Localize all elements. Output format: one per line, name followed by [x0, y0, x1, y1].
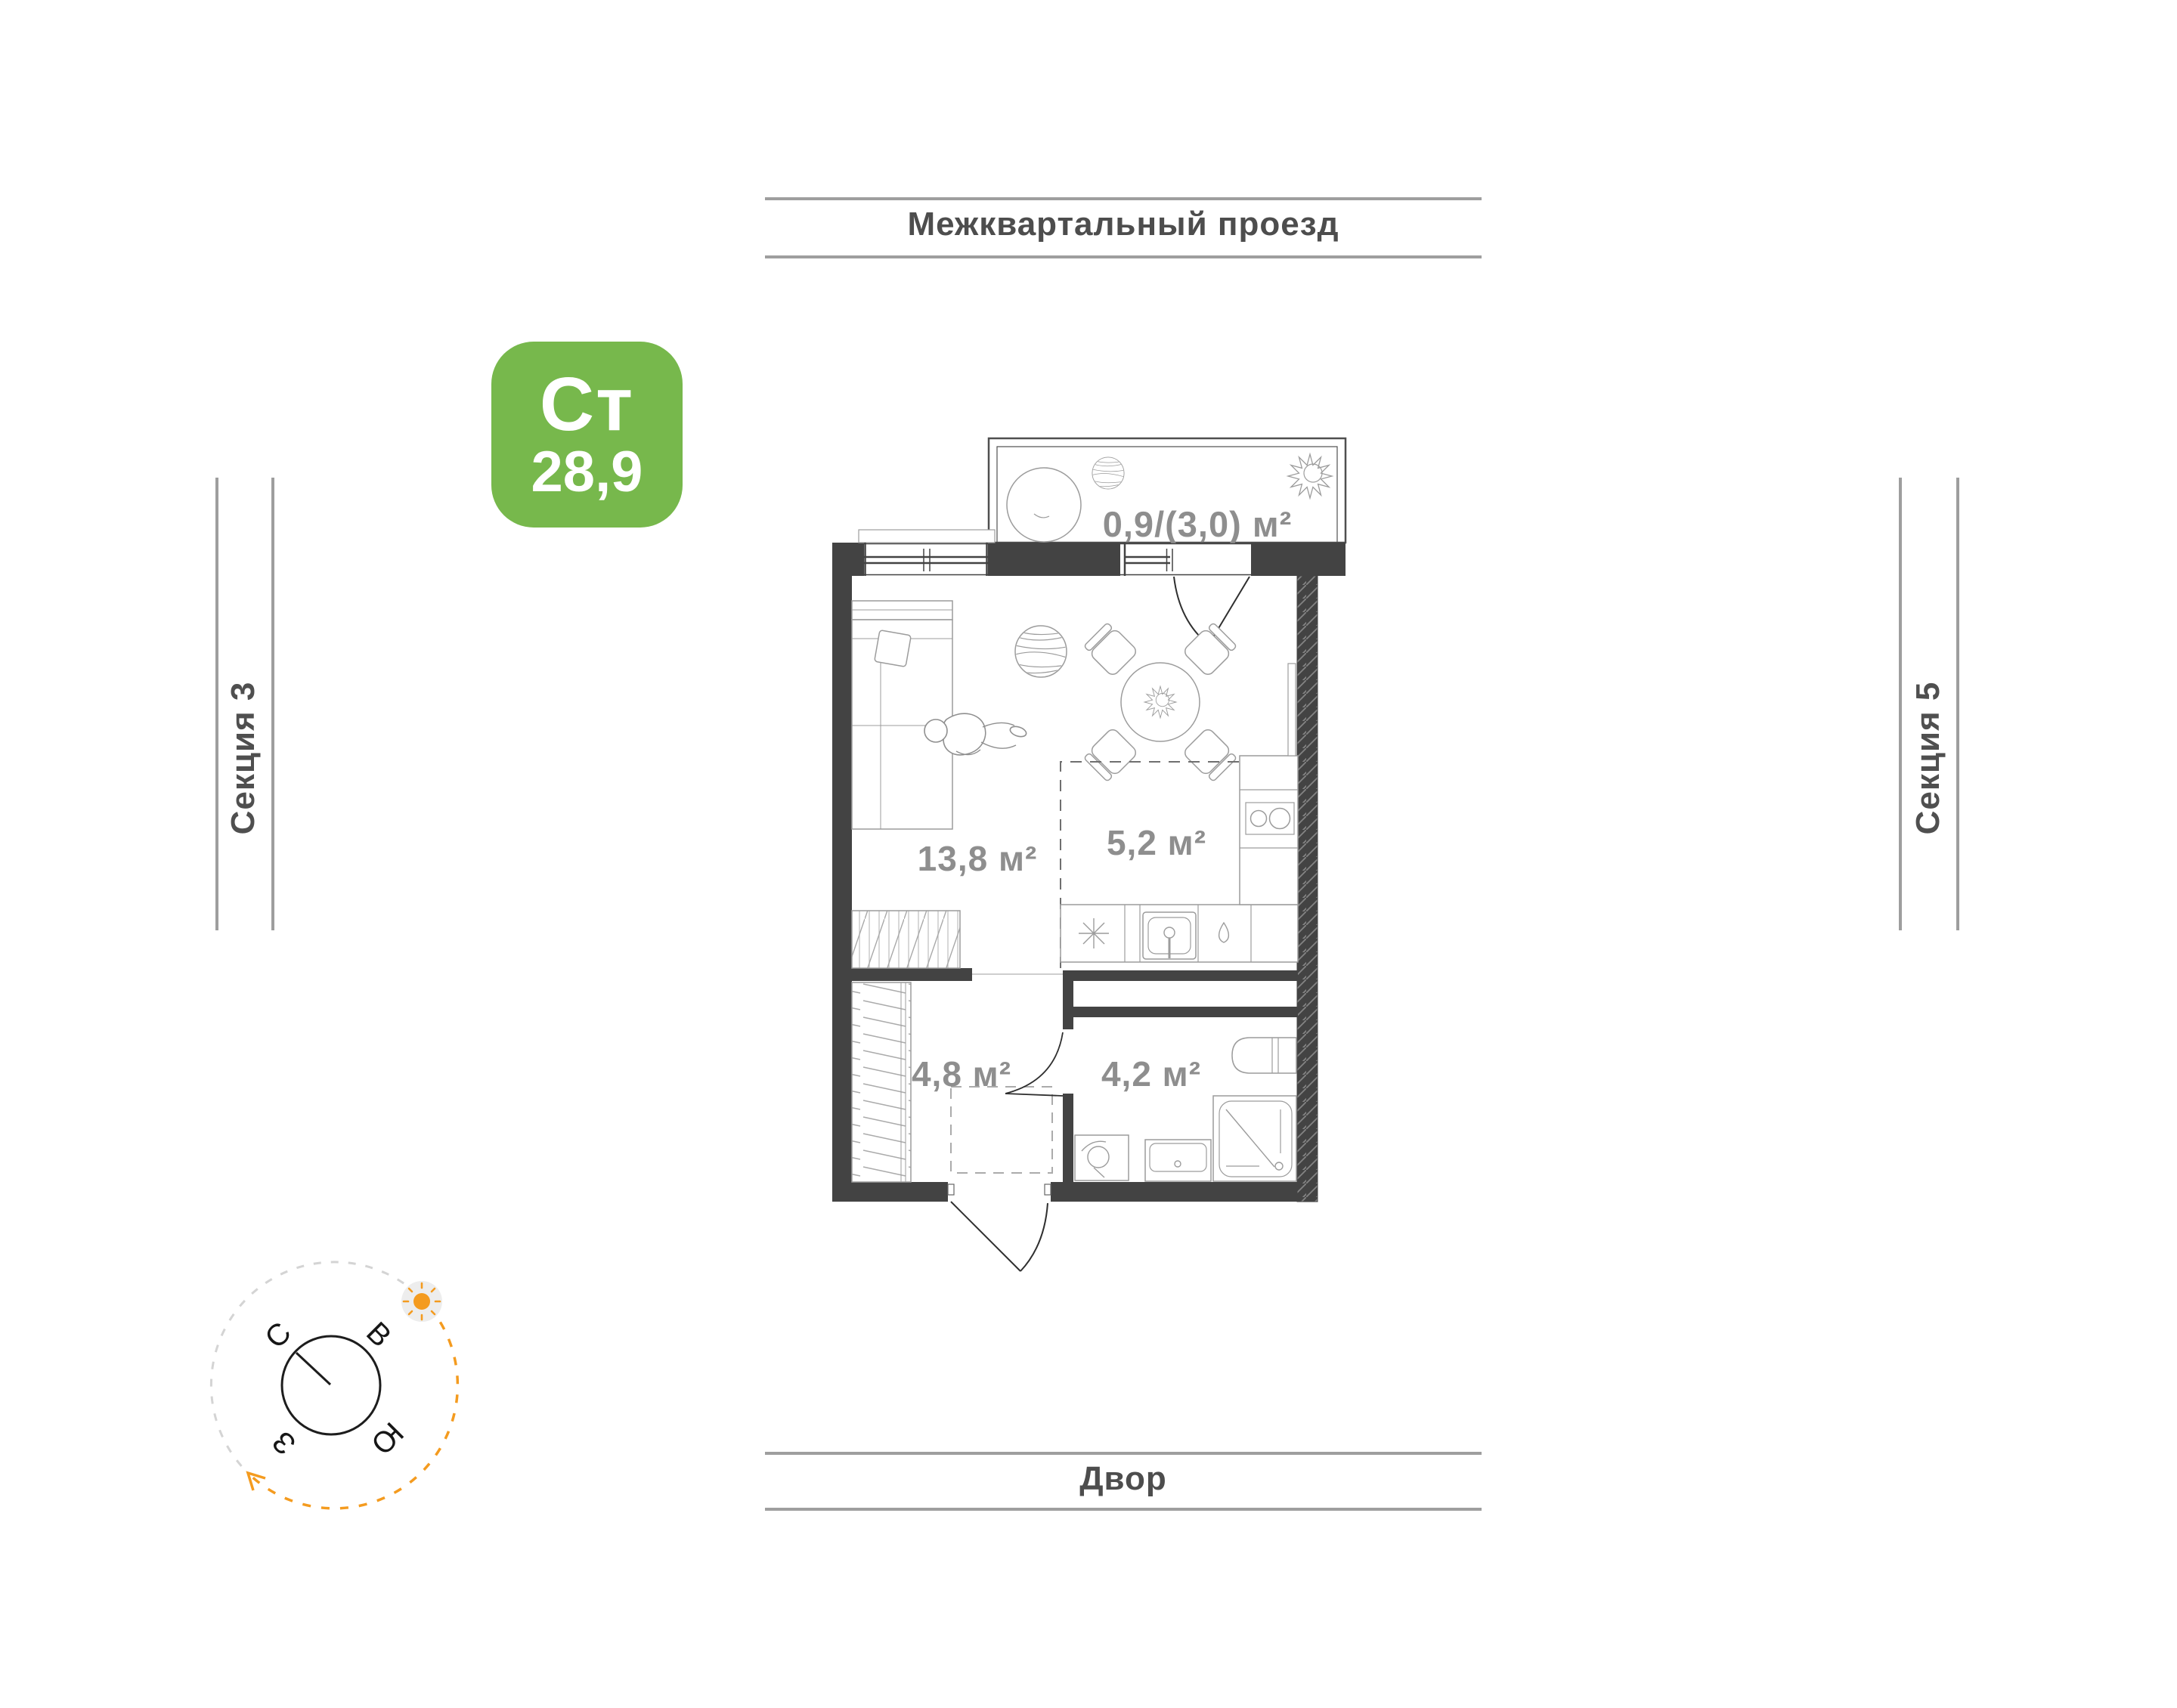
radiator-icon — [852, 601, 952, 620]
floorplan-drawing: 0,9/(3,0) м² — [816, 423, 1361, 1315]
apartment-type: Ст — [540, 367, 634, 442]
monolith-wall — [1297, 576, 1318, 1202]
compass-north: С — [259, 1316, 298, 1355]
living-wardrobe-icon — [852, 911, 960, 968]
balcony: 0,9/(3,0) м² — [989, 438, 1346, 544]
chair-icon — [1082, 727, 1138, 783]
tall-cabinet-icon — [1288, 664, 1296, 756]
plant-icon — [1288, 454, 1332, 498]
apartment-type-badge: Ст 28,9 — [491, 342, 683, 528]
sun-icon — [401, 1281, 442, 1322]
street-label: Межквартальный проезд — [765, 206, 1482, 243]
apartment-total-area: 28,9 — [531, 442, 643, 503]
hall-wardrobe-icon — [852, 982, 911, 1182]
living-room: 13,8 м² — [852, 601, 1067, 968]
chair-icon — [1082, 621, 1138, 677]
chair-icon — [1182, 621, 1238, 677]
section-right-label: Секция 5 — [1906, 645, 1951, 871]
compass-east: В — [360, 1316, 398, 1354]
compass-west: З — [266, 1425, 302, 1461]
street-line-bottom — [765, 255, 1482, 258]
dining-set — [1082, 621, 1237, 782]
floorplan-page: Межквартальный проезд Двор Секция 3 Секц… — [0, 0, 2177, 1708]
washing-machine-icon — [1232, 1038, 1296, 1073]
living-room-area-label: 13,8 м² — [918, 839, 1038, 878]
shower-icon — [1213, 1096, 1296, 1181]
compass-south: Ю — [364, 1416, 410, 1461]
window-balcony-door — [1120, 543, 1251, 576]
yard-line-top — [765, 1452, 1482, 1455]
compass-rose-icon: С В Ю З — [204, 1255, 469, 1557]
section-right-line-outer — [1956, 478, 1959, 930]
stove-icon — [1079, 918, 1109, 948]
rug-ball-icon — [1015, 626, 1067, 677]
balcony-table-icon — [1007, 468, 1081, 542]
yard-line-bottom — [765, 1508, 1482, 1511]
window-living — [859, 530, 995, 576]
street-line-top — [765, 197, 1482, 200]
bath-sink-icon — [1145, 1140, 1211, 1181]
pillow-icon — [875, 630, 912, 667]
section-left-line-outer — [215, 478, 218, 930]
balcony-area-label: 0,9/(3,0) м² — [1103, 504, 1293, 544]
compass-dial — [282, 1336, 380, 1434]
furniture-placeholder — [951, 1087, 1052, 1173]
entrance-door — [948, 1184, 1051, 1271]
decor-ball-icon — [1092, 457, 1124, 489]
hallway: 4,8 м² — [852, 982, 1052, 1182]
hob-icon — [1246, 803, 1294, 834]
kitchen-area-label: 5,2 м² — [1107, 823, 1206, 862]
section-left-label: Секция 3 — [221, 645, 266, 871]
kitchen-sink-icon — [1143, 912, 1196, 959]
yard-label: Двор — [765, 1460, 1482, 1498]
hallway-area-label: 4,8 м² — [912, 1054, 1011, 1094]
bathroom: 4,2 м² — [1075, 1038, 1296, 1181]
chair-icon — [1182, 727, 1238, 783]
section-left-line-inner — [271, 478, 274, 930]
toilet-icon — [1075, 1135, 1129, 1180]
section-right-line-inner — [1899, 478, 1902, 930]
bathroom-area-label: 4,2 м² — [1101, 1054, 1201, 1094]
